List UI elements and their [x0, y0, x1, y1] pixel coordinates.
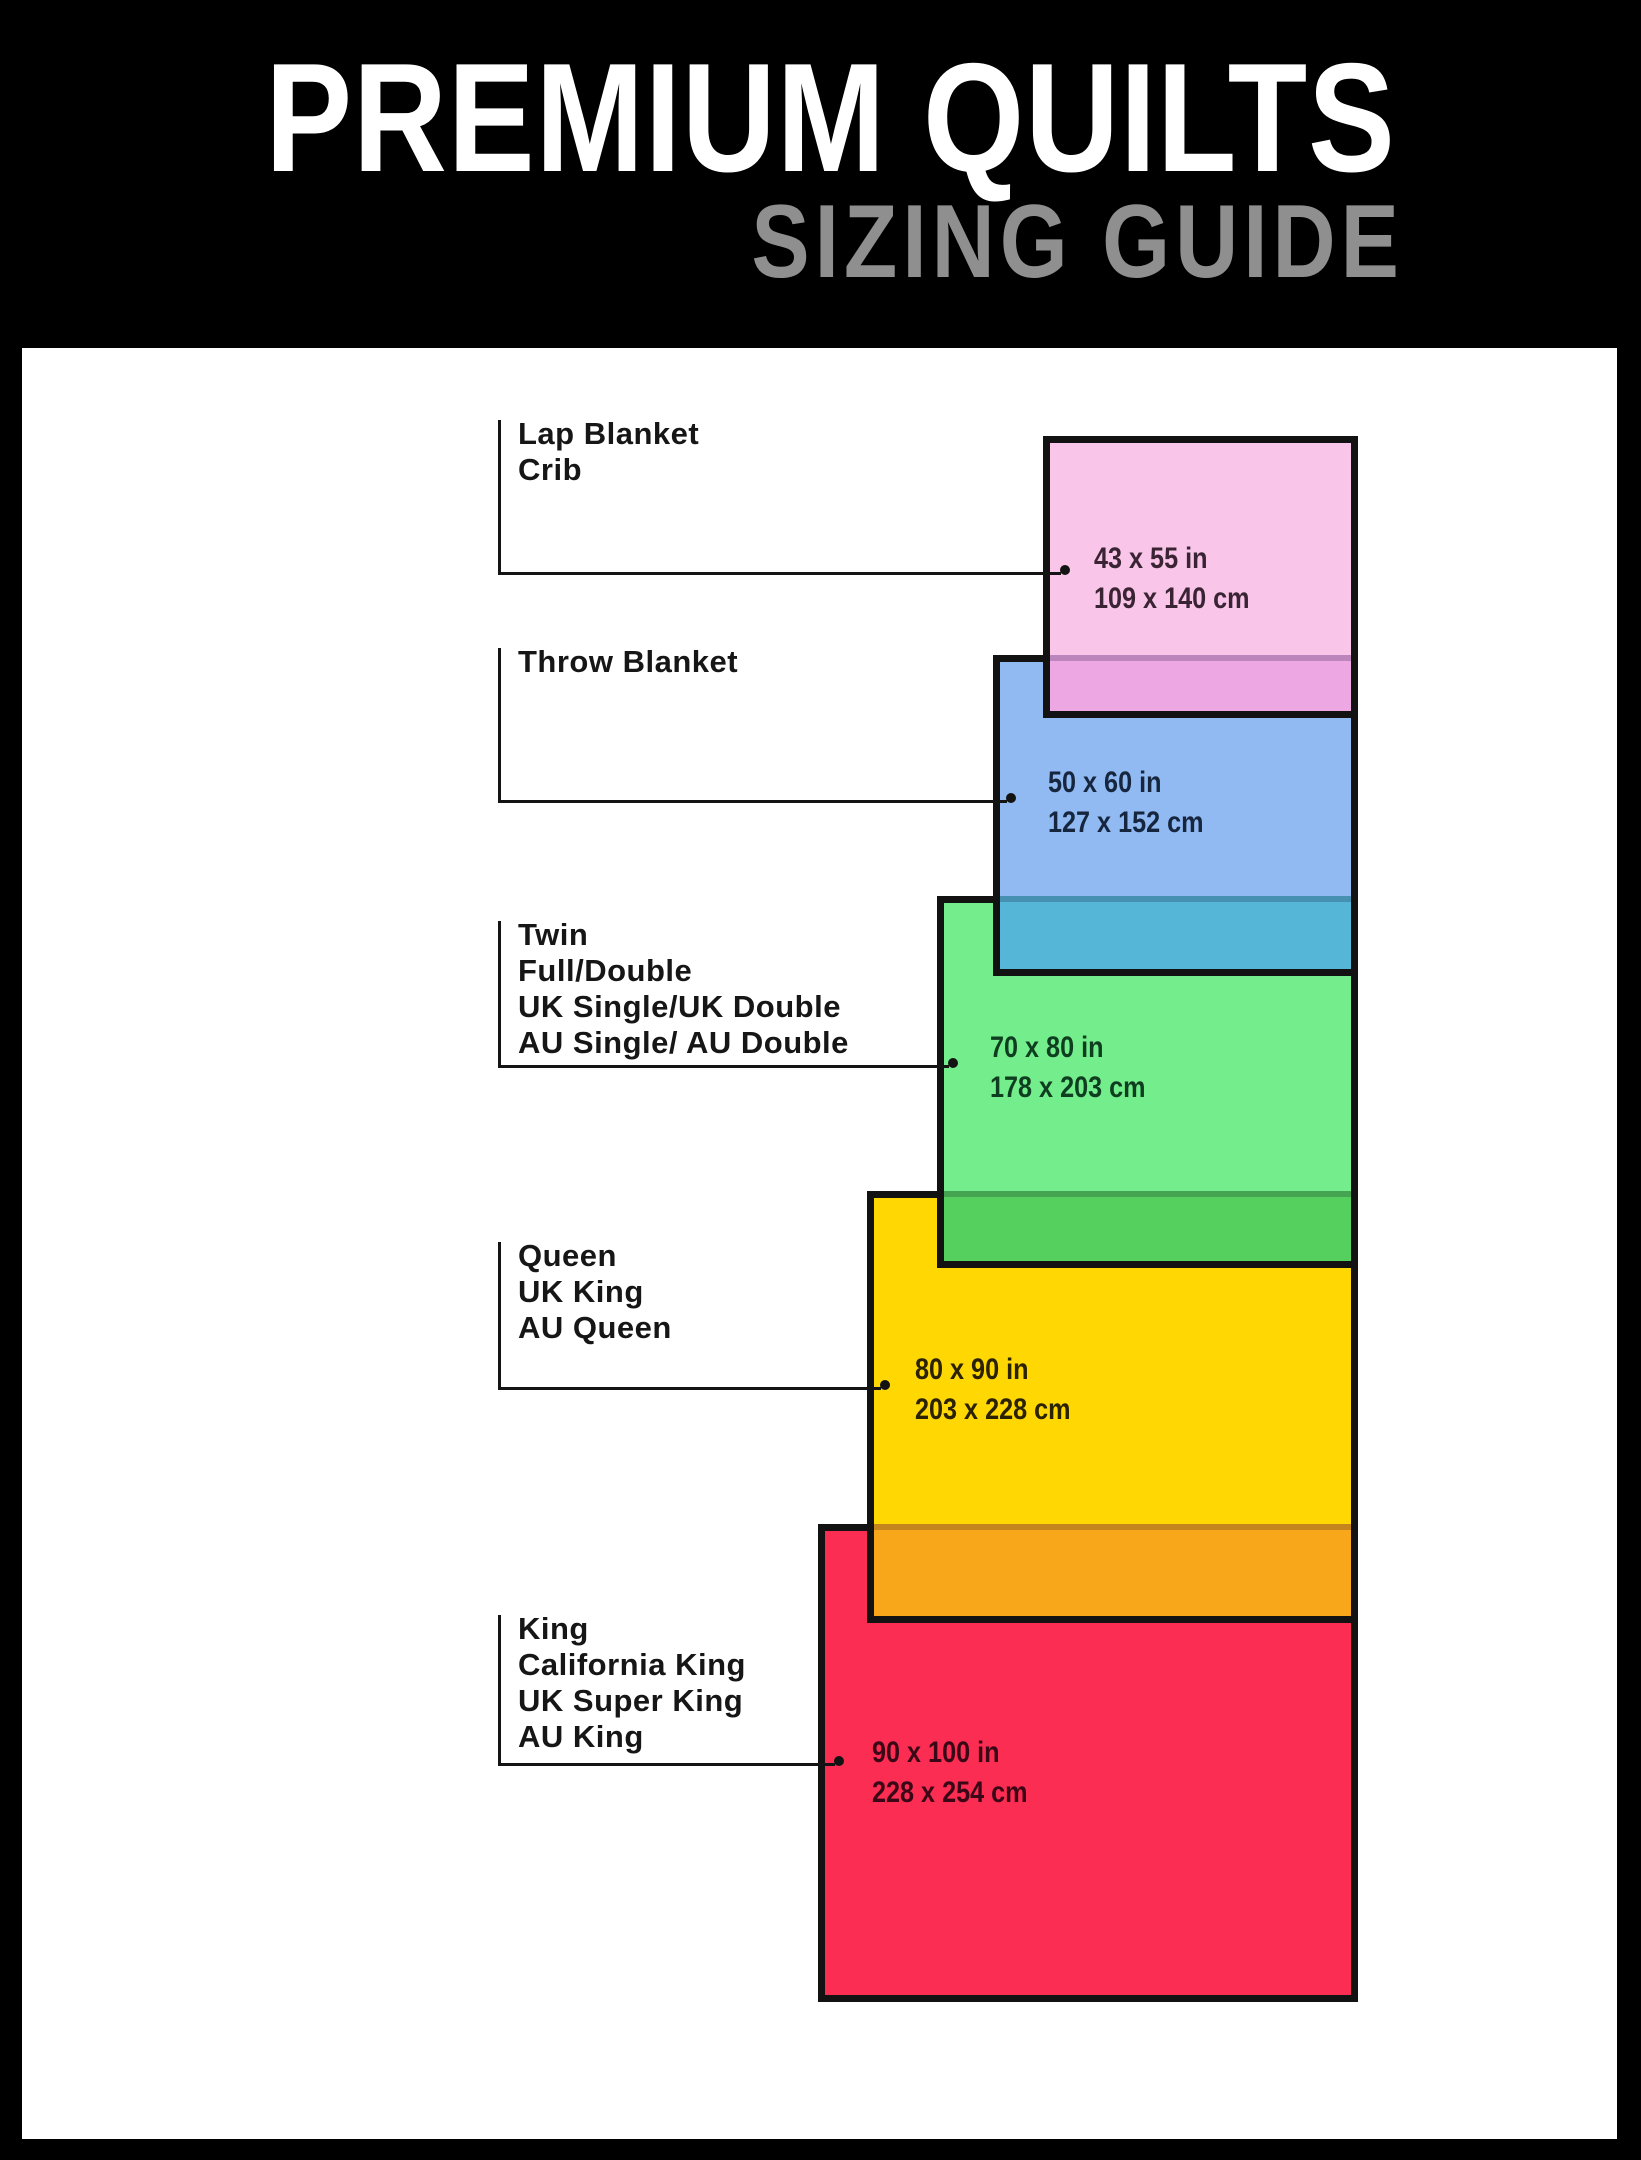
- page-title: PREMIUM QUILTS: [150, 40, 1512, 195]
- size-label: Lap Blanket: [518, 416, 699, 452]
- leader-dot-queen-icon: [880, 1380, 890, 1390]
- leader-horizontal-throw: [498, 800, 1007, 803]
- size-label: California King: [518, 1647, 746, 1683]
- label-group-king: King California King UK Super King AU Ki…: [518, 1611, 746, 1755]
- size-label: AU Single/ AU Double: [518, 1025, 849, 1061]
- page-subtitle: SIZING GUIDE: [751, 190, 1404, 294]
- size-label: AU Queen: [518, 1310, 672, 1346]
- dims-inches: 70 x 80 in: [990, 1028, 1146, 1068]
- leader-vertical-queen: [498, 1242, 501, 1389]
- size-label: Full/Double: [518, 953, 849, 989]
- size-label: Queen: [518, 1238, 672, 1274]
- leader-dot-twin-icon: [948, 1058, 958, 1068]
- dims-king: 90 x 100 in 228 x 254 cm: [872, 1733, 1028, 1813]
- leader-horizontal-king: [498, 1763, 835, 1766]
- leader-horizontal-twin: [498, 1065, 949, 1068]
- leader-vertical-twin: [498, 921, 501, 1067]
- leader-vertical-lap: [498, 420, 501, 574]
- size-label: Twin: [518, 917, 849, 953]
- dims-cm: 178 x 203 cm: [990, 1068, 1146, 1108]
- size-label: UK Super King: [518, 1683, 746, 1719]
- leader-horizontal-queen: [498, 1387, 881, 1390]
- overlap-throw-twin: [1000, 896, 1351, 969]
- dims-throw: 50 x 60 in 127 x 152 cm: [1048, 763, 1204, 843]
- dims-cm: 109 x 140 cm: [1094, 579, 1250, 619]
- leader-dot-king-icon: [834, 1756, 844, 1766]
- overlap-twin-queen: [944, 1191, 1351, 1261]
- size-label: UK King: [518, 1274, 672, 1310]
- dims-queen: 80 x 90 in 203 x 228 cm: [915, 1350, 1071, 1430]
- dims-lap-crib: 43 x 55 in 109 x 140 cm: [1094, 539, 1250, 619]
- dims-inches: 50 x 60 in: [1048, 763, 1204, 803]
- overlap-lap-throw: [1050, 655, 1351, 711]
- overlap-queen-king: [874, 1524, 1351, 1616]
- size-label: Crib: [518, 452, 699, 488]
- size-label: AU King: [518, 1719, 746, 1755]
- leader-dot-lap-icon: [1060, 565, 1070, 575]
- label-group-throw: Throw Blanket: [518, 644, 738, 680]
- leader-dot-throw-icon: [1006, 793, 1016, 803]
- label-group-twin: Twin Full/Double UK Single/UK Double AU …: [518, 917, 849, 1061]
- dims-inches: 90 x 100 in: [872, 1733, 1028, 1773]
- label-group-queen: Queen UK King AU Queen: [518, 1238, 672, 1346]
- size-label: UK Single/UK Double: [518, 989, 849, 1025]
- dims-inches: 43 x 55 in: [1094, 539, 1250, 579]
- label-group-lap-crib: Lap Blanket Crib: [518, 416, 699, 488]
- dims-inches: 80 x 90 in: [915, 1350, 1071, 1390]
- size-label: Throw Blanket: [518, 644, 738, 680]
- dims-cm: 228 x 254 cm: [872, 1773, 1028, 1813]
- leader-vertical-throw: [498, 648, 501, 802]
- infographic-canvas: PREMIUM QUILTS SIZING GUIDE Lap Blanket …: [0, 0, 1641, 2160]
- size-label: King: [518, 1611, 746, 1647]
- dims-cm: 127 x 152 cm: [1048, 803, 1204, 843]
- dims-cm: 203 x 228 cm: [915, 1390, 1071, 1430]
- dims-twin: 70 x 80 in 178 x 203 cm: [990, 1028, 1146, 1108]
- leader-vertical-king: [498, 1615, 501, 1765]
- leader-horizontal-lap: [498, 572, 1061, 575]
